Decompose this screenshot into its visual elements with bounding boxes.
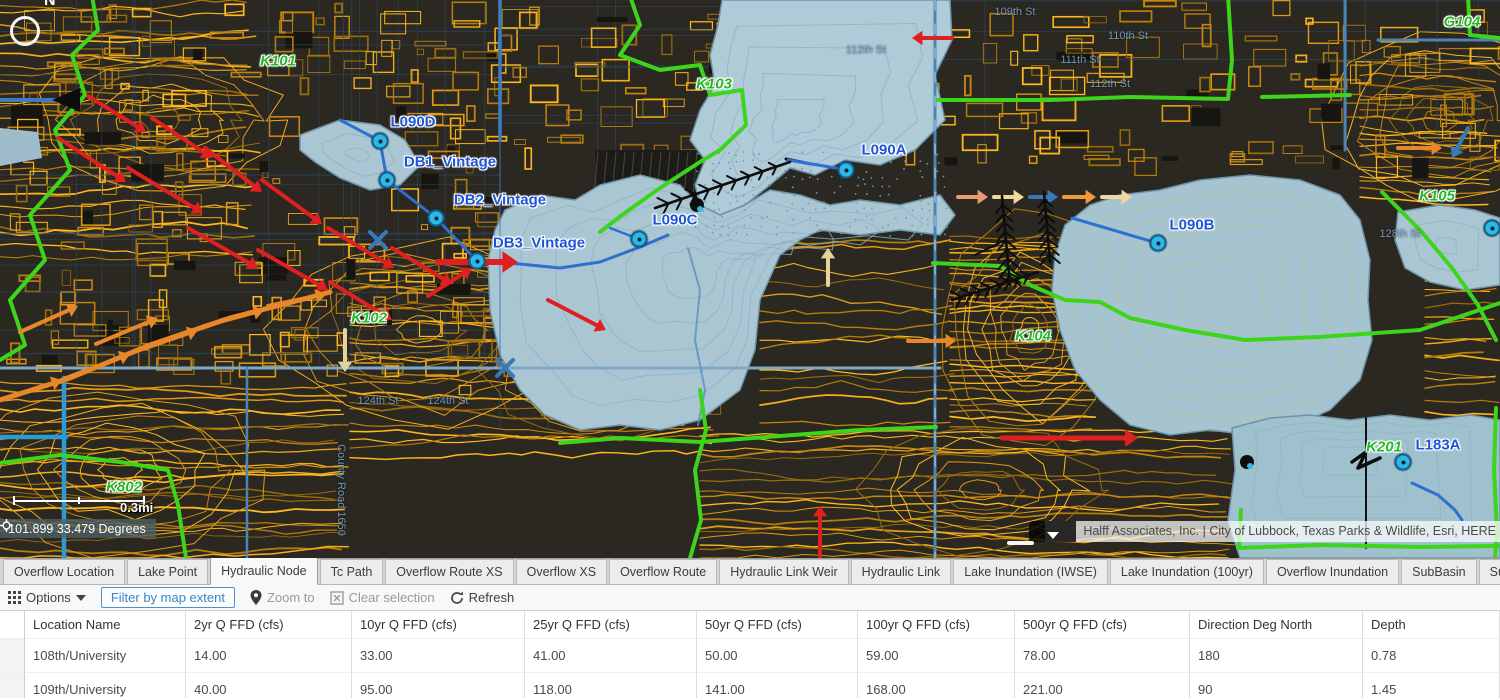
table-toolbar: Options Filter by map extent Zoom to Cle… — [0, 585, 1500, 611]
tab-subarea[interactable]: SubArea — [1479, 559, 1500, 585]
app-window: 109th St110th St111th St112th St112th St… — [0, 0, 1500, 700]
tab-overflow-route[interactable]: Overflow Route — [609, 559, 717, 585]
coordinate-readout: -101.899 33.479 Degrees — [0, 519, 156, 538]
tab-overflow-xs[interactable]: Overflow XS — [516, 559, 607, 585]
map-point-node[interactable] — [1484, 220, 1500, 237]
attribution-collapse-button[interactable] — [1029, 521, 1076, 542]
map-view[interactable]: 109th St110th St111th St112th St112th St… — [0, 0, 1500, 558]
column-header[interactable]: Depth — [1363, 611, 1500, 639]
zoom-to-button[interactable]: Zoom to — [250, 590, 315, 605]
tab-tc-path[interactable]: Tc Path — [320, 559, 384, 585]
options-label: Options — [26, 590, 71, 605]
table-cell: 50.00 — [697, 639, 858, 673]
map-canvas — [0, 0, 1500, 558]
map-point-DB3_Vintage[interactable] — [469, 253, 486, 270]
table-cell: 41.00 — [525, 639, 697, 673]
table-cell: 109th/University — [25, 673, 186, 698]
compass-ring-icon[interactable] — [10, 16, 40, 46]
column-header[interactable]: 25yr Q FFD (cfs) — [525, 611, 697, 639]
row-selector-cell[interactable] — [0, 673, 25, 698]
map-point-L183A[interactable] — [1395, 454, 1412, 471]
attribute-table: Location Name2yr Q FFD (cfs)10yr Q FFD (… — [0, 611, 1500, 698]
map-point-L090C[interactable] — [631, 231, 648, 248]
grid-icon — [8, 591, 21, 604]
map-point-DB1_Vintage[interactable] — [379, 172, 396, 189]
table-cell: 108th/University — [25, 639, 186, 673]
tab-subbasin[interactable]: SubBasin — [1401, 559, 1477, 585]
refresh-button[interactable]: Refresh — [450, 590, 515, 605]
map-point-L090B[interactable] — [1150, 235, 1167, 252]
table-cell: 40.00 — [186, 673, 352, 698]
row-selector-cell[interactable] — [0, 639, 25, 673]
table-row[interactable]: 108th/University14.0033.0041.0050.0059.0… — [0, 639, 1500, 673]
table-cell: 141.00 — [697, 673, 858, 698]
map-point-DB2_Vintage[interactable] — [428, 210, 445, 227]
filter-by-map-extent-button[interactable]: Filter by map extent — [101, 587, 235, 608]
crosshair-icon — [0, 519, 13, 532]
clear-selection-label: Clear selection — [349, 590, 435, 605]
chevron-down-icon — [1047, 532, 1059, 539]
table-cell: 168.00 — [858, 673, 1015, 698]
column-header[interactable]: 10yr Q FFD (cfs) — [352, 611, 525, 639]
tab-hydraulic-link-weir[interactable]: Hydraulic Link Weir — [719, 559, 848, 585]
map-attribution: Halff Associates, Inc. | City of Lubbock… — [1045, 521, 1500, 542]
zoom-to-label: Zoom to — [267, 590, 315, 605]
tab-lake-point[interactable]: Lake Point — [127, 559, 208, 585]
compass-north-letter: N — [44, 0, 56, 10]
attribution-text: Halff Associates, Inc. | City of Lubbock… — [1083, 524, 1496, 538]
map-point-L090A[interactable] — [838, 162, 855, 179]
table-cell: 221.00 — [1015, 673, 1190, 698]
caret-down-icon — [76, 595, 86, 606]
table-cell: 118.00 — [525, 673, 697, 698]
column-header[interactable]: Direction Deg North — [1190, 611, 1363, 639]
options-menu-button[interactable]: Options — [8, 590, 86, 606]
column-header[interactable]: 500yr Q FFD (cfs) — [1015, 611, 1190, 639]
column-header[interactable]: Location Name — [25, 611, 186, 639]
clear-selection-button[interactable]: Clear selection — [330, 590, 435, 605]
tab-lake-inundation-100yr-[interactable]: Lake Inundation (100yr) — [1110, 559, 1264, 585]
tab-lake-inundation-iwse-[interactable]: Lake Inundation (IWSE) — [953, 559, 1108, 585]
x-box-icon — [330, 591, 344, 605]
column-header[interactable]: 2yr Q FFD (cfs) — [186, 611, 352, 639]
tab-overflow-inundation[interactable]: Overflow Inundation — [1266, 559, 1399, 585]
tab-hydraulic-node[interactable]: Hydraulic Node — [210, 557, 317, 585]
table-cell: 14.00 — [186, 639, 352, 673]
tab-overflow-location[interactable]: Overflow Location — [3, 559, 125, 585]
coordinate-text: -101.899 33.479 Degrees — [4, 522, 146, 536]
tab-overflow-route-xs[interactable]: Overflow Route XS — [385, 559, 513, 585]
table-tabs: Overflow LocationLake PointHydraulic Nod… — [0, 558, 1500, 585]
table-cell: 33.00 — [352, 639, 525, 673]
table-cell: 90 — [1190, 673, 1363, 698]
table-row[interactable]: 109th/University40.0095.00118.00141.0016… — [0, 673, 1500, 698]
refresh-label: Refresh — [469, 590, 515, 605]
table-cell: 78.00 — [1015, 639, 1190, 673]
table-cell: 180 — [1190, 639, 1363, 673]
refresh-icon — [450, 591, 464, 605]
column-header[interactable]: 50yr Q FFD (cfs) — [697, 611, 858, 639]
table-cell: 1.45 — [1363, 673, 1500, 698]
tab-hydraulic-link[interactable]: Hydraulic Link — [851, 559, 952, 585]
map-pin-icon — [250, 590, 262, 605]
table-cell: 0.78 — [1363, 639, 1500, 673]
map-point-L090D[interactable] — [372, 133, 389, 150]
table-cell: 95.00 — [352, 673, 525, 698]
scrollbar-thumb[interactable] — [1007, 541, 1034, 545]
table-cell: 59.00 — [858, 639, 1015, 673]
header-selector-cell — [0, 611, 25, 639]
column-header[interactable]: 100yr Q FFD (cfs) — [858, 611, 1015, 639]
table-header-row: Location Name2yr Q FFD (cfs)10yr Q FFD (… — [0, 611, 1500, 639]
